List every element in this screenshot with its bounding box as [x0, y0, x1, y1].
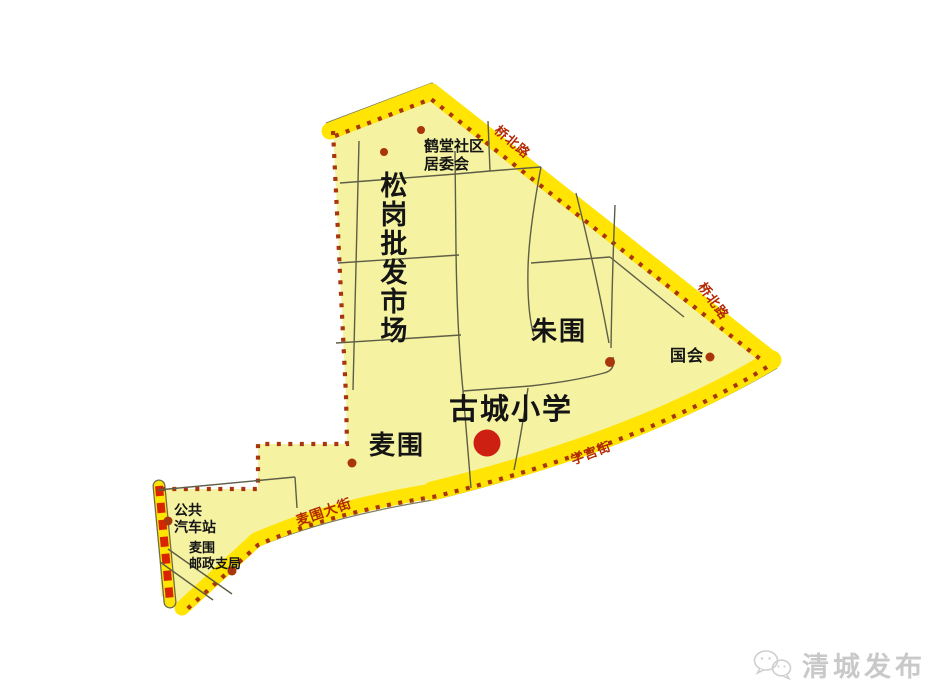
poi-dot-guohui — [706, 353, 715, 362]
label-zhuwei: 朱围 — [531, 316, 587, 347]
poi-dot-zhuwei — [605, 357, 615, 367]
map-canvas: 松岗批发市场 鹤堂社区 居委会 朱围 国会 古城小学 麦围 公共 汽车站 麦围 … — [0, 0, 934, 693]
poi-dot-north-1 — [417, 126, 425, 134]
label-post-office: 麦围 邮政支局 — [189, 540, 241, 571]
label-guohui: 国会 — [670, 347, 704, 366]
poi-dot-maiwei — [348, 459, 357, 468]
label-songgang-market: 松岗批发市场 — [377, 171, 405, 345]
poi-dot-north-2 — [380, 148, 388, 156]
gucheng-school-dot — [474, 430, 501, 457]
label-maiwei: 麦围 — [369, 430, 425, 461]
label-gucheng-school: 古城小学 — [449, 393, 573, 428]
label-bus-station: 公共 汽车站 — [174, 502, 216, 536]
poi-dot-bus-station — [164, 517, 173, 526]
watermark: 清城发布 — [752, 645, 926, 684]
district-map — [0, 0, 934, 693]
label-hetang-committee: 鹤堂社区 居委会 — [424, 138, 484, 174]
boundary-dots-left — [159, 131, 347, 489]
watermark-text: 清城发布 — [802, 645, 926, 684]
wechat-icon — [752, 648, 794, 682]
